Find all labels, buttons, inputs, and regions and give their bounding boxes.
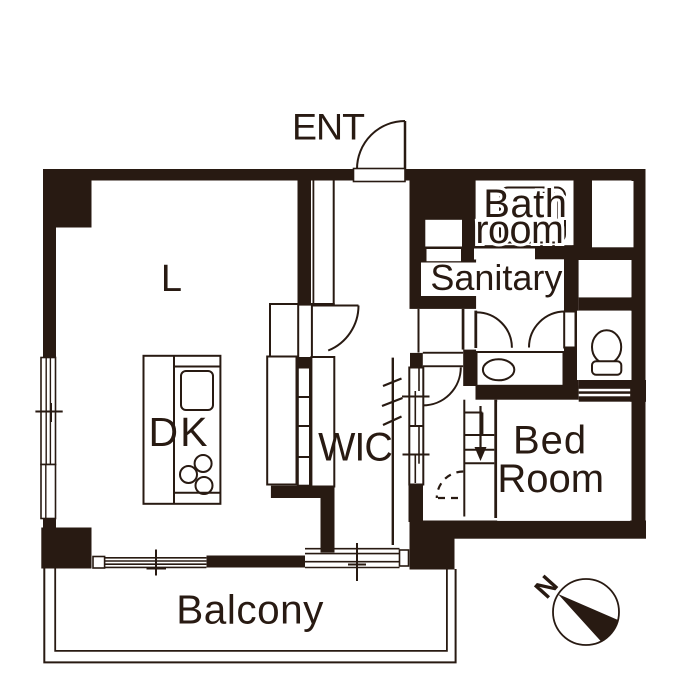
svg-text:DK: DK xyxy=(149,409,210,455)
svg-text:WIC: WIC xyxy=(318,426,392,470)
svg-text:Bed: Bed xyxy=(513,418,587,462)
svg-text:Balcony: Balcony xyxy=(176,587,324,633)
svg-text:ENT: ENT xyxy=(292,106,365,148)
svg-text:Sanitary: Sanitary xyxy=(430,257,562,298)
svg-text:L: L xyxy=(161,258,182,300)
svg-text:room: room xyxy=(475,208,563,252)
svg-text:Room: Room xyxy=(497,457,604,501)
